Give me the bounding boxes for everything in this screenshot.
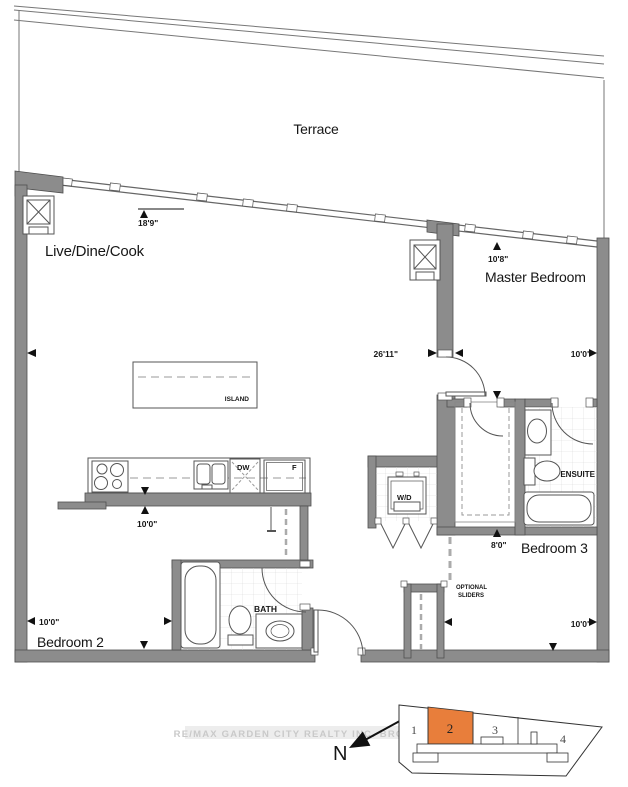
live-dine-cook-label: Live/Dine/Cook [45,243,145,260]
toilet-icon [228,606,253,645]
terrace-label: Terrace [293,121,339,137]
keyplan-unit-4: 4 [560,732,566,746]
floor-plan-drawing: DW F ISLAND BATH [0,0,628,787]
entry-closet [267,507,286,556]
dim-living-depth: 18'9" [138,218,158,228]
ensuite-vanity-icon [525,410,551,455]
bath-vanity-icon [256,614,302,648]
hvac-unit-master [410,240,440,280]
kitchen-counter: DW F [88,458,310,493]
floor-plan-page: DW F ISLAND BATH [0,0,628,787]
bathtub-icon [181,562,220,648]
washer-dryer-label: W/D [397,493,412,502]
window-wall [60,179,597,247]
master-bedroom-label: Master Bedroom [485,269,586,285]
keyplan-corridor [417,744,557,753]
master-closet [455,398,515,522]
compass: N [333,717,407,765]
keyplan-unit-1: 1 [411,723,417,737]
keyplan-unit-3: 3 [492,723,498,737]
optional-sliders: OPTIONAL SLIDERS [450,537,487,599]
bedroom3-label: Bedroom 3 [521,540,588,556]
entry-door [311,610,365,655]
ensuite-room: ENSUITE [524,398,597,527]
sink-icon [194,461,228,489]
dishwasher-label: DW [237,463,250,472]
island-label: ISLAND [225,396,250,403]
bedroom2-label: Bedroom 2 [37,634,104,650]
optional-sliders-label-1: OPTIONAL [456,585,487,591]
ensuite-tub-icon [524,492,594,525]
keyplan: 1 2 3 4 [399,705,602,776]
dim-bedroom3-width: 10'0" [571,619,591,629]
kitchen-island: ISLAND [133,362,257,408]
dim-master-depth: 10'8" [488,254,508,264]
entry-door-arc [318,610,363,655]
keyplan-unit-2: 2 [447,721,454,736]
stove-icon [92,461,128,492]
bath-label: BATH [254,604,277,614]
dim-bedroom2-width: 10'0" [39,617,59,627]
dim-bedroom2-depth: 10'0" [137,519,157,529]
dim-bedroom3-depth: 8'0" [491,540,507,550]
ensuite-label: ENSUITE [560,470,595,479]
optional-sliders-label-2: SLIDERS [458,593,484,599]
laundry-closet: W/D [375,467,437,548]
dim-living-width: 26'11" [374,349,399,359]
bifold-doors [375,518,437,548]
master-door-arc [446,357,485,396]
bath-room: BATH [181,561,310,650]
north-label: N [333,743,347,765]
fridge-label: F [292,463,297,472]
closet-door-arc [470,403,503,436]
dim-master-width: 10'0" [571,349,591,359]
hvac-unit-living [23,196,54,234]
master-door [438,350,486,400]
